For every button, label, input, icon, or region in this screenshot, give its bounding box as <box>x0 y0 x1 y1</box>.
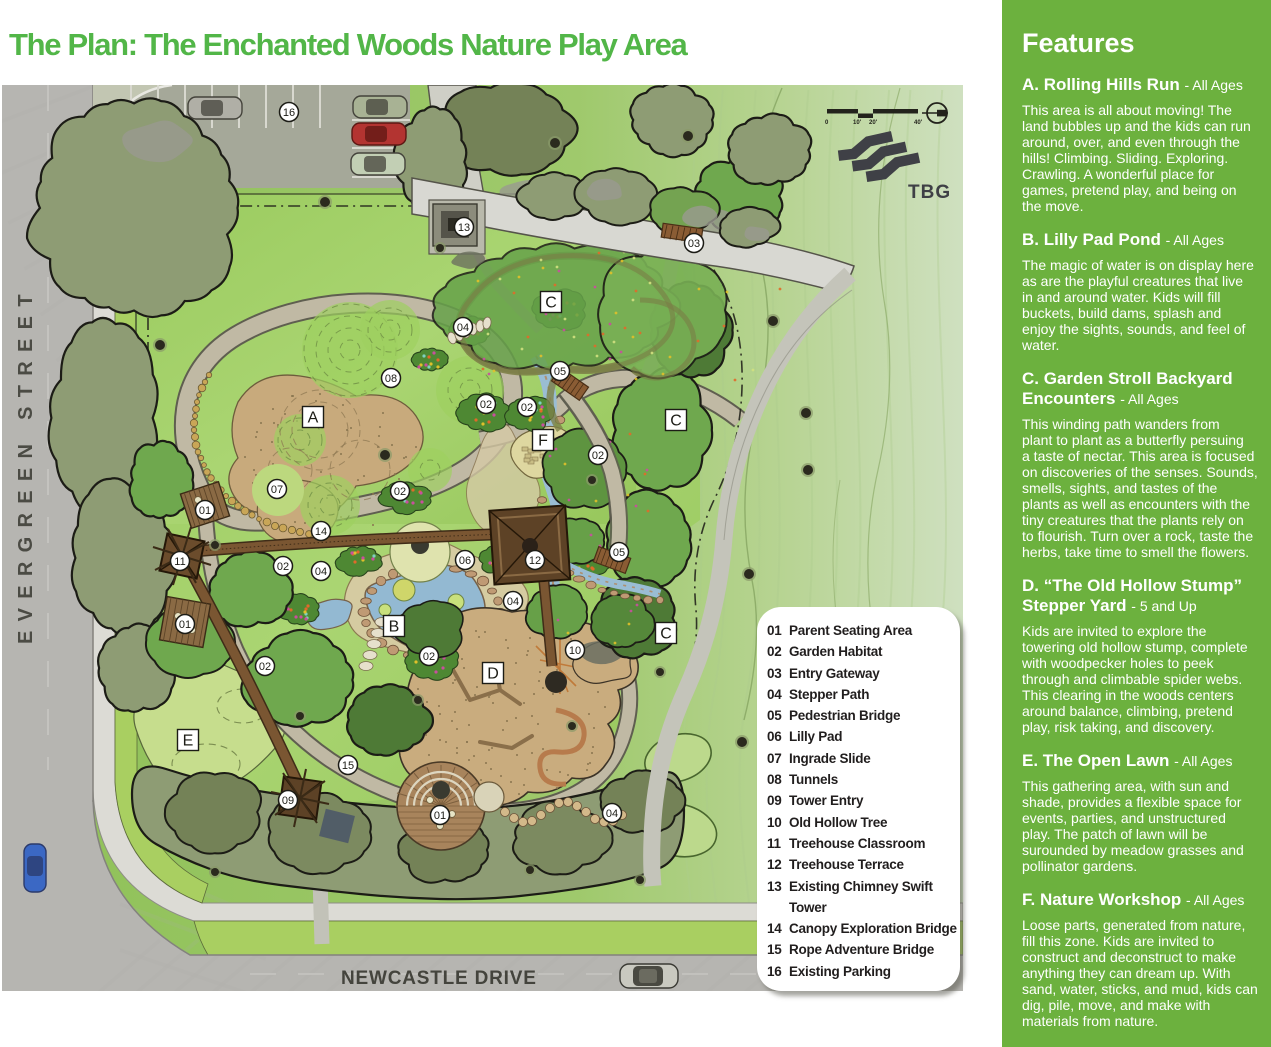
svg-text:08: 08 <box>385 373 397 385</box>
svg-text:A: A <box>308 410 319 427</box>
svg-text:02: 02 <box>259 661 271 673</box>
svg-text:01: 01 <box>179 619 191 631</box>
svg-text:F: F <box>538 433 548 450</box>
svg-text:20': 20' <box>869 120 878 126</box>
svg-text:03: 03 <box>688 238 700 250</box>
svg-text:02: 02 <box>521 402 533 414</box>
svg-text:C: C <box>670 413 682 430</box>
svg-text:EVERGREEN STREET: EVERGREEN STREET <box>15 285 37 644</box>
svg-text:02: 02 <box>423 651 435 663</box>
svg-text:06: 06 <box>459 555 471 567</box>
svg-text:10': 10' <box>853 120 862 126</box>
svg-text:04: 04 <box>315 566 327 578</box>
svg-text:E: E <box>183 733 194 750</box>
svg-text:C: C <box>545 295 557 312</box>
svg-text:B: B <box>389 619 400 636</box>
svg-text:09: 09 <box>282 795 294 807</box>
svg-text:04: 04 <box>507 596 519 608</box>
svg-text:14: 14 <box>315 526 327 538</box>
svg-text:15: 15 <box>342 760 354 772</box>
svg-text:04: 04 <box>457 322 469 334</box>
svg-text:02: 02 <box>480 399 492 411</box>
svg-text:12: 12 <box>529 555 541 567</box>
svg-text:02: 02 <box>277 561 289 573</box>
svg-text:C: C <box>660 626 672 643</box>
svg-text:01: 01 <box>199 505 211 517</box>
svg-text:01: 01 <box>434 810 446 822</box>
svg-text:02: 02 <box>592 450 604 462</box>
svg-text:05: 05 <box>554 366 566 378</box>
svg-text:13: 13 <box>458 222 470 234</box>
svg-text:02: 02 <box>394 486 406 498</box>
svg-text:07: 07 <box>271 484 283 496</box>
svg-text:16: 16 <box>283 107 295 119</box>
svg-text:TBG: TBG <box>908 182 951 203</box>
svg-text:40': 40' <box>914 120 923 126</box>
svg-text:11: 11 <box>174 556 185 568</box>
svg-text:05: 05 <box>613 547 625 559</box>
svg-text:NEWCASTLE DRIVE: NEWCASTLE DRIVE <box>341 968 537 989</box>
svg-text:04: 04 <box>606 808 618 820</box>
svg-text:D: D <box>487 666 499 683</box>
svg-text:10: 10 <box>569 645 581 657</box>
